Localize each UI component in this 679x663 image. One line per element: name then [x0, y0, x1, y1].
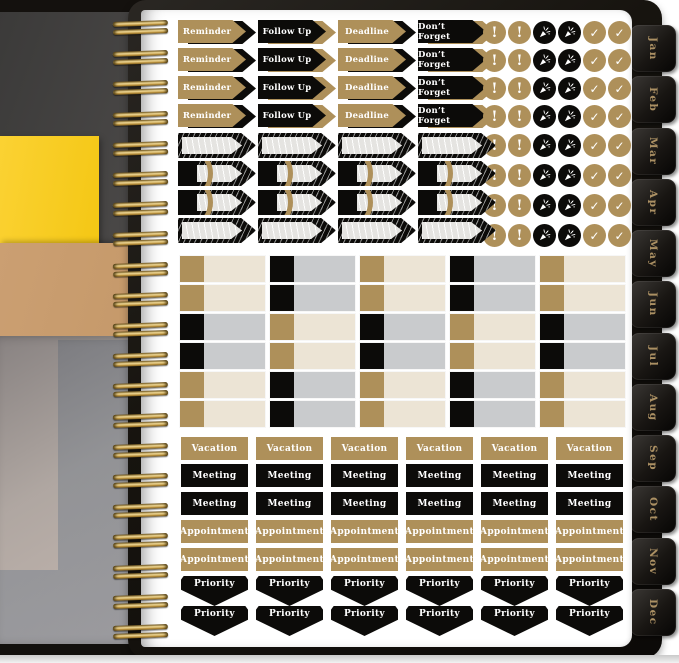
exclamation-icon: !: [508, 224, 531, 247]
priority-pennant-sticker: Priority: [481, 606, 548, 636]
binding-ring: [113, 351, 169, 369]
binding-ring: [113, 230, 169, 248]
grid-bar: [294, 285, 355, 311]
party-popper-icon: [558, 105, 581, 128]
priority-pennant-sticker: Priority: [556, 606, 623, 636]
grid-square: [360, 314, 384, 340]
party-popper-icon: [558, 224, 581, 247]
ring-wire: [113, 602, 168, 609]
floor-shadow: [0, 655, 679, 663]
ring-wire: [113, 58, 168, 65]
grid-bar: [384, 285, 445, 311]
arrow-face: Deadline: [338, 20, 406, 43]
binding-ring: [113, 472, 169, 490]
binding-ring: [113, 412, 169, 430]
exclamation-icon: !: [508, 194, 531, 217]
flag-inner: [422, 222, 482, 239]
grid-sticker: [270, 372, 355, 398]
grid-sticker: [360, 401, 445, 427]
ring-wire: [113, 511, 168, 518]
binding-ring: [113, 291, 169, 309]
binding-ring: [113, 170, 169, 188]
arrow-sticker: Follow Up: [258, 20, 336, 44]
label-sticker: Meeting: [331, 492, 398, 515]
ring-wire: [113, 624, 168, 631]
flag-sticker: [338, 190, 416, 215]
grid-bar: [474, 314, 535, 340]
label-sticker: Meeting: [406, 464, 473, 487]
party-popper-icon: [533, 21, 556, 44]
grid-square: [450, 401, 474, 427]
label-sticker: Vacation: [556, 437, 623, 460]
arrow-face: Follow Up: [258, 20, 326, 43]
party-popper-icon: [533, 164, 556, 187]
ring-wire: [113, 481, 168, 488]
ring-wire: [113, 421, 168, 428]
grid-bar: [474, 401, 535, 427]
grid-bar: [204, 372, 265, 398]
label-sticker: Appointment: [481, 520, 548, 543]
party-popper-icon: [533, 194, 556, 217]
grid-sticker: [450, 285, 535, 311]
check-icon: ✓: [608, 164, 631, 187]
label-sticker: Meeting: [256, 464, 323, 487]
grid-square: [450, 343, 474, 369]
priority-pennant-sticker: Priority: [406, 606, 473, 636]
flag-sticker: [418, 218, 496, 243]
flag-sticker: [258, 218, 336, 243]
grid-square: [360, 285, 384, 311]
arrow-sticker: Deadline: [338, 76, 416, 100]
grid-square: [450, 314, 474, 340]
grid-sticker: [450, 401, 535, 427]
ring-wire: [113, 179, 168, 186]
grid-bar: [384, 314, 445, 340]
ring-wire: [113, 239, 168, 246]
ring-wire: [113, 141, 168, 148]
grid-bar: [384, 401, 445, 427]
flag-inner: [342, 137, 402, 154]
ring-wire: [113, 443, 168, 450]
flag-left-block: [338, 190, 357, 215]
grid-sticker: [540, 401, 625, 427]
flag-sticker: [418, 161, 496, 186]
grid-sticker: [270, 401, 355, 427]
grid-bar: [564, 372, 625, 398]
ring-wire: [113, 201, 168, 208]
grid-bar: [204, 285, 265, 311]
check-icon: ✓: [583, 194, 606, 217]
ring-wire: [113, 231, 168, 238]
ring-wire: [113, 632, 168, 639]
check-icon: ✓: [583, 164, 606, 187]
grid-bar: [564, 285, 625, 311]
grid-bar: [294, 343, 355, 369]
ring-wire: [113, 382, 168, 389]
party-popper-icon: [558, 21, 581, 44]
grid-bar: [384, 343, 445, 369]
party-popper-icon: [558, 134, 581, 157]
exclamation-icon: !: [508, 164, 531, 187]
flag-sticker: [418, 190, 496, 215]
grid-bar: [204, 256, 265, 282]
ring-wire: [113, 292, 168, 299]
check-icon: ✓: [608, 21, 631, 44]
arrow-face: Don’t Forget: [418, 48, 486, 71]
ring-wire: [113, 413, 168, 420]
ring-wire: [113, 572, 168, 579]
ring-wire: [113, 594, 168, 601]
grid-sticker: [450, 256, 535, 282]
grid-square: [360, 256, 384, 282]
grid-square: [270, 343, 294, 369]
label-sticker: Meeting: [331, 464, 398, 487]
grid-square: [450, 372, 474, 398]
ring-wire: [113, 50, 168, 57]
priority-pennant-sticker: Priority: [256, 576, 323, 606]
ring-wire: [113, 171, 168, 178]
flag-left-block: [338, 161, 357, 186]
grid-bar: [564, 314, 625, 340]
party-popper-icon: [558, 77, 581, 100]
check-icon: ✓: [583, 21, 606, 44]
party-popper-icon: [558, 164, 581, 187]
grid-square: [540, 314, 564, 340]
ring-wire: [113, 300, 168, 307]
grid-bar: [564, 343, 625, 369]
planner-photo: JanFebMarAprMayJunJulAugSepOctNovDec Rem…: [0, 0, 679, 663]
label-sticker: Appointment: [331, 548, 398, 571]
binding-ring: [113, 442, 169, 460]
ring-wire: [113, 360, 168, 367]
priority-pennant-sticker: Priority: [556, 576, 623, 606]
check-icon: ✓: [583, 134, 606, 157]
binding-ring: [113, 381, 169, 399]
priority-pennant-sticker: Priority: [256, 606, 323, 636]
binding-ring: [113, 79, 169, 97]
grid-bar: [204, 343, 265, 369]
label-sticker: Appointment: [256, 520, 323, 543]
arrow-face: Deadline: [338, 104, 406, 127]
grid-square: [540, 372, 564, 398]
label-sticker: Meeting: [406, 492, 473, 515]
grid-sticker: [540, 256, 625, 282]
grid-sticker: [360, 256, 445, 282]
grid-sticker: [540, 372, 625, 398]
check-icon: ✓: [608, 49, 631, 72]
grid-sticker: [540, 285, 625, 311]
grid-sticker: [450, 343, 535, 369]
exclamation-icon: !: [508, 77, 531, 100]
grid-sticker: [270, 314, 355, 340]
grid-bar: [474, 256, 535, 282]
party-popper-icon: [533, 49, 556, 72]
ring-wire: [113, 352, 168, 359]
binding-ring: [113, 563, 169, 581]
binding-ring: [113, 19, 169, 37]
arrow-face: Don’t Forget: [418, 104, 486, 127]
ring-wire: [113, 564, 168, 571]
flag-left-block: [418, 161, 437, 186]
arrow-sticker: Deadline: [338, 48, 416, 72]
check-icon: ✓: [583, 224, 606, 247]
grid-square: [360, 372, 384, 398]
grid-sticker: [360, 285, 445, 311]
flag-inner: [262, 137, 322, 154]
ring-wire: [113, 149, 168, 156]
label-sticker: Appointment: [556, 548, 623, 571]
arrow-sticker: Deadline: [338, 104, 416, 128]
grid-sticker: [540, 343, 625, 369]
flag-inner: [262, 222, 322, 239]
grid-bar: [384, 372, 445, 398]
flag-sticker: [418, 133, 496, 158]
grid-square: [270, 401, 294, 427]
arrow-face: Deadline: [338, 76, 406, 99]
grid-sticker: [450, 372, 535, 398]
check-icon: ✓: [608, 105, 631, 128]
grid-bar: [474, 285, 535, 311]
flag-left-block: [258, 190, 277, 215]
party-popper-icon: [533, 224, 556, 247]
spiral-binding: [0, 0, 200, 663]
label-sticker: Appointment: [406, 520, 473, 543]
label-sticker: Vacation: [331, 437, 398, 460]
exclamation-icon: !: [508, 134, 531, 157]
priority-pennant-sticker: Priority: [331, 606, 398, 636]
grid-bar: [564, 256, 625, 282]
arrow-face: Follow Up: [258, 104, 326, 127]
ring-wire: [113, 390, 168, 397]
flag-sticker: [258, 161, 336, 186]
grid-square: [540, 343, 564, 369]
ring-wire: [113, 533, 168, 540]
party-popper-icon: [533, 105, 556, 128]
ring-wire: [113, 330, 168, 337]
priority-pennant-sticker: Priority: [481, 576, 548, 606]
grid-square: [270, 256, 294, 282]
ring-wire: [113, 88, 168, 95]
exclamation-icon: !: [483, 21, 506, 44]
label-sticker: Vacation: [256, 437, 323, 460]
exclamation-icon: !: [483, 77, 506, 100]
grid-sticker: [360, 372, 445, 398]
arrow-face: Don’t Forget: [418, 20, 486, 43]
exclamation-icon: !: [508, 49, 531, 72]
arrow-sticker: Follow Up: [258, 48, 336, 72]
binding-ring: [113, 110, 169, 128]
binding-ring: [113, 532, 169, 550]
ring-wire: [113, 111, 168, 118]
label-sticker: Vacation: [481, 437, 548, 460]
grid-bar: [294, 372, 355, 398]
party-popper-icon: [533, 77, 556, 100]
ring-wire: [113, 28, 168, 35]
flag-sticker: [338, 133, 416, 158]
grid-sticker: [360, 343, 445, 369]
grid-square: [270, 314, 294, 340]
grid-bar: [474, 372, 535, 398]
label-sticker: Appointment: [256, 548, 323, 571]
grid-square: [270, 285, 294, 311]
check-icon: ✓: [583, 77, 606, 100]
label-sticker: Meeting: [256, 492, 323, 515]
check-icon: ✓: [608, 194, 631, 217]
sticker-sheet-page: ReminderFollow UpDeadlineDon’t ForgetRem…: [141, 10, 632, 647]
label-sticker: Appointment: [481, 548, 548, 571]
flag-sticker: [258, 190, 336, 215]
flag-left-block: [418, 190, 437, 215]
arrow-sticker: Follow Up: [258, 104, 336, 128]
check-icon: ✓: [583, 49, 606, 72]
arrow-sticker: Deadline: [338, 20, 416, 44]
party-popper-icon: [533, 134, 556, 157]
grid-square: [450, 256, 474, 282]
ring-wire: [113, 119, 168, 126]
grid-bar: [294, 401, 355, 427]
binding-ring: [113, 200, 169, 218]
binding-ring: [113, 49, 169, 67]
check-icon: ✓: [608, 224, 631, 247]
grid-square: [360, 343, 384, 369]
grid-square: [540, 285, 564, 311]
binding-ring: [113, 261, 169, 279]
binding-ring: [113, 140, 169, 158]
priority-pennant-sticker: Priority: [331, 576, 398, 606]
grid-square: [270, 372, 294, 398]
check-icon: ✓: [608, 77, 631, 100]
flag-sticker: [338, 218, 416, 243]
binding-ring: [113, 593, 169, 611]
ring-wire: [113, 20, 168, 27]
grid-sticker: [270, 343, 355, 369]
arrow-face: Don’t Forget: [418, 76, 486, 99]
arrow-face: Follow Up: [258, 48, 326, 71]
grid-square: [540, 401, 564, 427]
flag-left-block: [258, 161, 277, 186]
exclamation-icon: !: [483, 105, 506, 128]
grid-bar: [204, 401, 265, 427]
grid-square: [450, 285, 474, 311]
grid-bar: [294, 256, 355, 282]
check-icon: ✓: [583, 105, 606, 128]
label-sticker: Vacation: [406, 437, 473, 460]
grid-sticker: [540, 314, 625, 340]
grid-square: [540, 256, 564, 282]
label-sticker: Meeting: [556, 492, 623, 515]
ring-wire: [113, 503, 168, 510]
grid-sticker: [270, 256, 355, 282]
exclamation-icon: !: [483, 49, 506, 72]
ring-wire: [113, 473, 168, 480]
exclamation-icon: !: [508, 21, 531, 44]
grid-sticker: [450, 314, 535, 340]
flag-sticker: [338, 161, 416, 186]
arrow-sticker: Follow Up: [258, 76, 336, 100]
grid-square: [360, 401, 384, 427]
label-sticker: Meeting: [481, 464, 548, 487]
label-sticker: Appointment: [331, 520, 398, 543]
check-icon: ✓: [608, 134, 631, 157]
ring-wire: [113, 451, 168, 458]
flag-inner: [342, 222, 402, 239]
sticker-sheet: ReminderFollow UpDeadlineDon’t ForgetRem…: [141, 10, 632, 647]
exclamation-icon: !: [508, 105, 531, 128]
arrow-face: Deadline: [338, 48, 406, 71]
grid-sticker: [270, 285, 355, 311]
label-sticker: Meeting: [556, 464, 623, 487]
ring-wire: [113, 80, 168, 87]
grid-bar: [384, 256, 445, 282]
party-popper-icon: [558, 49, 581, 72]
binding-ring: [113, 623, 169, 641]
party-popper-icon: [558, 194, 581, 217]
label-sticker: Appointment: [406, 548, 473, 571]
ring-wire: [113, 209, 168, 216]
flag-inner: [422, 137, 482, 154]
label-sticker: Appointment: [556, 520, 623, 543]
flag-sticker: [258, 133, 336, 158]
grid-bar: [204, 314, 265, 340]
label-sticker: Meeting: [481, 492, 548, 515]
grid-bar: [474, 343, 535, 369]
grid-bar: [564, 401, 625, 427]
arrow-face: Follow Up: [258, 76, 326, 99]
grid-bar: [294, 314, 355, 340]
ring-wire: [113, 270, 168, 277]
binding-ring: [113, 321, 169, 339]
grid-sticker: [360, 314, 445, 340]
priority-pennant-sticker: Priority: [406, 576, 473, 606]
binding-ring: [113, 502, 169, 520]
ring-wire: [113, 322, 168, 329]
ring-wire: [113, 541, 168, 548]
ring-wire: [113, 262, 168, 269]
